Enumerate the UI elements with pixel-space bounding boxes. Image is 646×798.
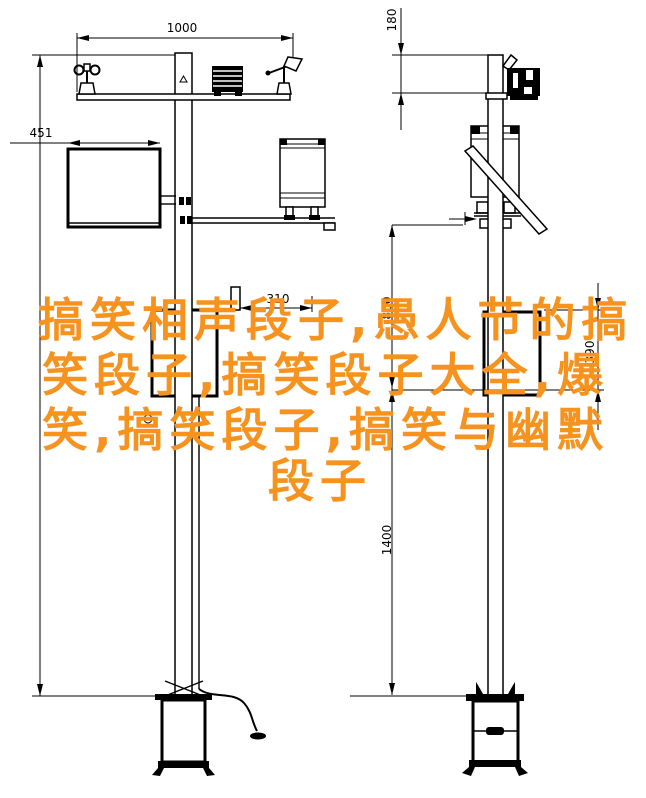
dim-label-1000: 1000	[167, 21, 198, 35]
arrow-icon	[37, 55, 43, 67]
dim-label-180: 180	[385, 9, 399, 32]
watermark-line-2: 笑段子,搞笑段子大全,爆	[42, 352, 609, 398]
anchor-icon	[250, 733, 266, 740]
foundation-front	[32, 681, 215, 776]
watermark-line-3: 笑,搞笑段子,搞笑与幽默	[42, 407, 609, 453]
arrow-icon	[389, 225, 395, 237]
wind-vane	[266, 57, 303, 94]
dim-label-1400: 1400	[380, 525, 394, 556]
bracket-pointer	[449, 212, 477, 225]
arrow-icon	[389, 683, 395, 695]
crossarm-end	[486, 93, 507, 99]
arrow-icon	[37, 684, 43, 696]
arrow-icon	[68, 140, 80, 146]
arrow-icon	[77, 35, 89, 41]
rain-gauge-front	[180, 139, 335, 230]
arrow-icon	[398, 43, 404, 55]
drawing-canvas: 1000 451 310	[0, 0, 646, 798]
radiation-shield-front	[212, 66, 243, 96]
watermark-line-1: 搞笑相声段子,愚人节的搞	[38, 297, 633, 343]
anemometer	[75, 64, 100, 94]
crossarm	[77, 94, 290, 100]
watermark-line-4: 段子	[268, 458, 372, 504]
arrow-icon	[465, 216, 477, 222]
arrow-icon	[148, 140, 160, 146]
arrow-icon	[281, 35, 293, 41]
dimension-pole-top-offset: 180	[385, 8, 488, 130]
radiation-shield-side	[507, 68, 540, 100]
wind-vane-bracket-side	[503, 55, 517, 70]
foundation-side	[350, 682, 528, 776]
dim-label-451: 451	[30, 126, 53, 140]
solar-panel-box	[68, 149, 191, 227]
arrow-icon	[398, 93, 404, 105]
